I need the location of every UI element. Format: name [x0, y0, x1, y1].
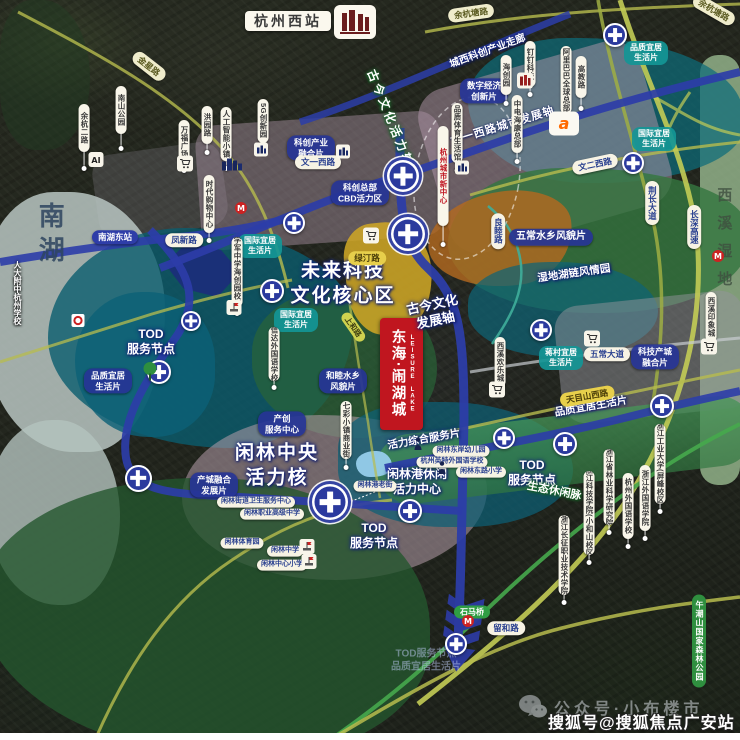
- road-label: 长深高速: [687, 205, 701, 249]
- metro-station-icon: [603, 23, 627, 47]
- venue-icon: [254, 143, 268, 162]
- poi-pin-label: 杭州外国语学校: [623, 473, 634, 539]
- road-label: 良睦路: [491, 213, 505, 249]
- cart-icon: [363, 228, 379, 249]
- poi-pin: 浙江科技学院(小和山校区): [584, 471, 595, 565]
- poi-pin: 浙江外国语学院: [640, 465, 651, 541]
- poi-pin: 浙江省林业科学研究院: [604, 449, 615, 535]
- zone-tag: 国际宜居 生活片: [238, 234, 282, 258]
- project-name-en: LEISURE LAKE: [410, 335, 416, 413]
- zone-tag: 和睦水乡 风貌片: [319, 368, 367, 393]
- poi-label: 人大附中杭州学校: [12, 261, 22, 325]
- poi-pin-label: 信达外国语学校: [269, 327, 280, 381]
- poi-pin-label: 杭州城市新中心: [438, 126, 449, 226]
- project-banner: 东海·闹湖城 LEISURE LAKE: [380, 318, 423, 430]
- poi-pin: 洪园路: [202, 106, 213, 155]
- alibaba-icon: a: [549, 112, 579, 141]
- poi-pin-label: 浙江外国语学院: [640, 465, 651, 531]
- poi-pin-label: 中电海康总部: [512, 95, 523, 153]
- poi-pin: 浙江长征职业技术学院: [559, 515, 570, 605]
- road-label: 绿汀路: [348, 251, 386, 265]
- metro-station-icon: [260, 279, 284, 303]
- poi-pin-label: 浙江科技学院(小和山校区): [584, 471, 595, 555]
- road-label: 南湖东站: [92, 230, 138, 244]
- pin-stem: [580, 98, 582, 106]
- zone-tag: 产城融合 发展片: [190, 472, 238, 497]
- pin-dot: [344, 465, 349, 470]
- pin-dot: [504, 101, 509, 106]
- west-station-building-icon: [334, 5, 376, 44]
- zone-tag: 品质宜居 生活片: [84, 368, 132, 393]
- figure-icon: [413, 437, 423, 455]
- poi-label: 闲林东路小学: [456, 467, 506, 478]
- pin-dot: [515, 159, 520, 164]
- poi-label: 闲林职业高级中学: [240, 509, 304, 520]
- pin-dot: [82, 166, 87, 171]
- metro-station-icon: [622, 152, 644, 174]
- poi-pin-label: 时代购物中心: [204, 175, 215, 233]
- metro-station-icon: [493, 427, 515, 449]
- promo-map: 杭州西站 东海·闹湖城 LEISURE LAKE 公众号·小布楼市 搜狐号@搜狐…: [0, 0, 740, 740]
- zone-tag: 品质宜居 生活片: [624, 41, 668, 65]
- pin-dot: [119, 146, 124, 151]
- buildings-icon: [221, 157, 243, 176]
- metro-station-icon: [650, 394, 674, 418]
- pin-dot: [579, 106, 584, 111]
- poi-pin-label: 余杭二路: [79, 104, 90, 152]
- svg-text:M: M: [237, 204, 245, 213]
- area-name: 南湖: [34, 202, 67, 270]
- poi-pin: 时代购物中心: [204, 175, 215, 243]
- pin-dot: [626, 544, 631, 549]
- zone-tag: 产创 服务中心: [258, 411, 306, 436]
- tree-icon: [142, 362, 158, 387]
- school-icon: [302, 554, 317, 574]
- svg-text:AI: AI: [91, 156, 100, 165]
- axis-label: 未来科技 文化核心区: [290, 259, 395, 308]
- hwy-icon: [72, 314, 85, 332]
- pin-dot: [205, 150, 210, 155]
- metro-station-icon: [553, 432, 577, 456]
- pin-dot: [441, 242, 446, 247]
- poi-pin: 信达外国语学校: [269, 327, 280, 390]
- wechat-icon: [518, 694, 548, 720]
- pin-stem: [442, 226, 444, 242]
- ai-icon: AI: [89, 152, 104, 172]
- road-label: 文一西路: [295, 155, 341, 169]
- poi-pin-label: 浙江工业大学(屏峰校区): [655, 424, 666, 504]
- axis-label: TOD 服务节点: [350, 521, 398, 551]
- poi-label: 闲林港老街: [354, 481, 397, 492]
- pin-dot: [607, 530, 612, 535]
- svg-text:a: a: [559, 114, 570, 133]
- cart-icon: [584, 331, 600, 352]
- poi-pin-label: 南山公园: [116, 86, 127, 134]
- svg-text:M: M: [714, 252, 722, 261]
- poi-pin: 高教路: [576, 56, 587, 111]
- west-station-label: 杭州西站: [245, 11, 331, 31]
- metro-station-icon: [445, 633, 467, 655]
- poi-pin: 中电海康总部: [512, 95, 523, 164]
- zone-tag: 科技产城 融合片: [631, 344, 679, 369]
- metro-station-icon: [530, 319, 552, 341]
- axis-label: 闲林中央 活力核: [235, 441, 319, 490]
- figure-icon: [437, 461, 447, 479]
- satellite-map-background: 杭州西站 东海·闹湖城 LEISURE LAKE 公众号·小布楼市 搜狐号@搜狐…: [0, 0, 740, 740]
- poi-pin: 南山公园: [116, 86, 127, 151]
- poi-pin-label: 七彩小镇商业街: [341, 401, 352, 459]
- project-name-cn: 东海·闹湖城: [388, 329, 409, 418]
- poi-pin-label: 5G创新园: [258, 99, 269, 143]
- poi-pin-label: 人工智能小镇: [221, 107, 232, 161]
- poi-pin-label: 浙江长征职业技术学院: [559, 515, 570, 595]
- metro-station-icon: [391, 217, 425, 251]
- pin-dot: [643, 536, 648, 541]
- metro-station-icon: [181, 311, 201, 331]
- venue-icon: [336, 145, 350, 164]
- road-label: 荆长大道: [645, 181, 659, 225]
- school-icon: [227, 300, 242, 320]
- poi-pin-label: 品质体育生活馆: [452, 103, 463, 163]
- road-label: 午潮山国家森林公园: [692, 595, 706, 688]
- poi-pin: 海创园: [501, 55, 512, 106]
- cart-icon: [489, 382, 505, 403]
- sohu-watermark-text: 搜狐号@搜狐焦点广安站: [548, 709, 735, 733]
- pin-dot: [562, 600, 567, 605]
- zone-tag: 五常水乡风貌片: [509, 229, 593, 246]
- cart-icon: [177, 156, 193, 177]
- poi-pin-label: 浙江省林业科学研究院: [604, 449, 615, 525]
- venue-icon: [455, 161, 469, 180]
- zone-tag: 国际宜居 生活片: [274, 308, 318, 332]
- poi-pin-label: 海创园: [501, 55, 512, 95]
- pin-stem: [83, 152, 85, 166]
- metroM-icon: M: [462, 614, 474, 632]
- poi-label: 闲林中心小学: [257, 560, 307, 571]
- poi-pin: 浙江工业大学(屏峰校区): [655, 424, 666, 514]
- poi-pin: 杭州城市新中心: [438, 126, 449, 247]
- metro-station-icon: [398, 499, 422, 523]
- poi-pin: 杭州外国语学校: [623, 473, 634, 549]
- poi-label: 闲林街道卫生服务中心: [217, 497, 295, 508]
- metroM-icon: M: [712, 249, 724, 267]
- poi-pin: 七彩小镇商业街: [341, 401, 352, 470]
- zone-tag: 国际宜居 生活片: [632, 127, 676, 151]
- axis-label: TOD 服务节点: [127, 327, 175, 357]
- area-name: 西溪湿地: [714, 187, 733, 299]
- poi-pin-label: 西溪欢乐城: [495, 337, 506, 387]
- poi-pin-label: 高教路: [576, 56, 587, 98]
- zone-tag: 蒋村宜居 生活片: [539, 346, 583, 370]
- landmark-icon: [517, 73, 533, 94]
- metro-station-icon: [387, 160, 419, 192]
- cart-icon: [701, 339, 717, 360]
- poi-label: 闲林东岸幼儿园: [433, 446, 490, 457]
- poi-pin-label: 学军中学海创园校区: [232, 237, 243, 307]
- pin-dot: [658, 509, 663, 514]
- metroM-icon: M: [235, 201, 247, 219]
- pin-dot: [587, 560, 592, 565]
- road-label: 留和路: [487, 621, 525, 635]
- svg-text:M: M: [464, 617, 472, 626]
- metro-station-icon: [125, 465, 152, 492]
- poi-pin-label: 阿里巴巴全球总部: [561, 46, 572, 114]
- metro-station-icon: [312, 484, 348, 520]
- bottom-white-strip: [0, 733, 740, 740]
- poi-pin-label: 洪园路: [202, 106, 213, 144]
- pin-dot: [207, 238, 212, 243]
- poi-pin-label: 西溪印象城: [706, 292, 717, 342]
- pin-dot: [272, 385, 277, 390]
- road-label: 凤新路: [165, 233, 203, 247]
- metro-station-icon: [283, 212, 305, 234]
- zone-tag: 科创总部 CBD活力区: [331, 180, 389, 205]
- poi-label: 闲林体育园: [221, 538, 264, 549]
- poi-label: 闲林中学: [267, 546, 303, 557]
- pin-stem: [120, 134, 122, 146]
